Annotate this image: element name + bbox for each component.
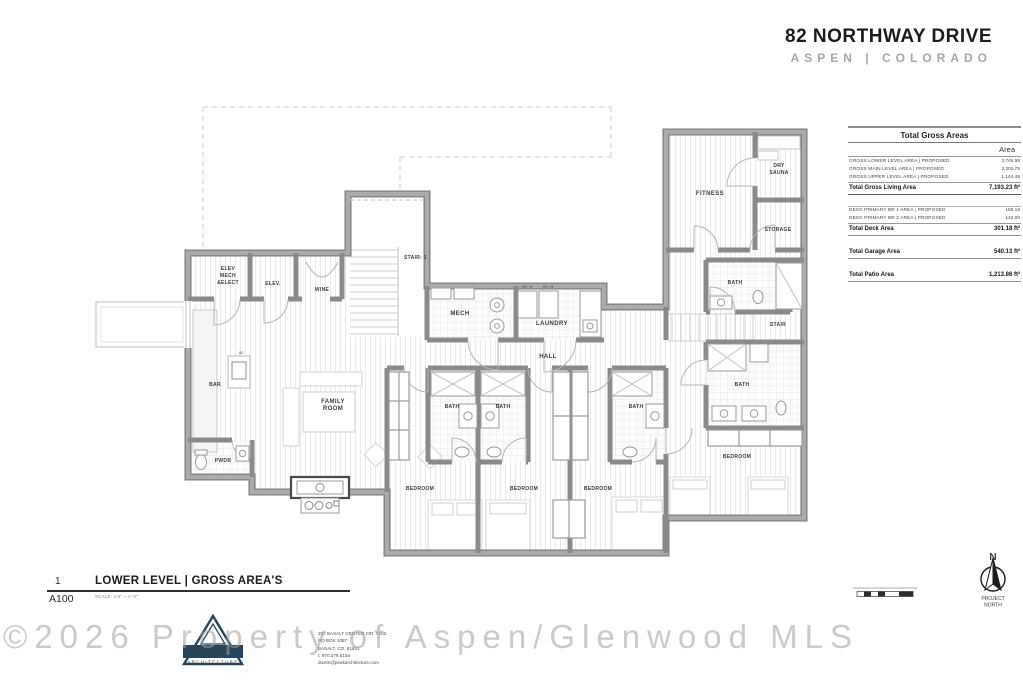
room-label-pwdr: PWDR (215, 458, 232, 464)
page-subtitle: ASPEN | COLORADO (785, 51, 992, 65)
table-row: DECK PRIMARY BR 1 AREA | PROPOSED 159.18 (848, 206, 1021, 215)
window-left (184, 301, 192, 348)
room-label-hall: HALL (539, 354, 557, 360)
room-label-sauna: DRY (773, 163, 785, 169)
sheet-page: ELEV MECH &ELECT ELEV. WINE STAIR: 1 MEC… (0, 0, 1023, 680)
svg-text:NORTH: NORTH (984, 603, 1002, 609)
room-label-family: FAMILY (321, 399, 345, 405)
window-well (96, 302, 188, 347)
room-label-stair2: STAIR (770, 322, 786, 328)
stair-shaft-floor (350, 197, 424, 337)
room-label-bedroom2: BEDROOM (510, 486, 538, 492)
table-row: GROSS UPPER LEVEL AREA | PROPOSED 1,144.… (848, 173, 1021, 181)
room-label-elev: ELEV. (265, 281, 281, 287)
table-row: DECK PRIMARY BR 2 AREA | PROPOSED 142.00 (848, 215, 1021, 223)
room-label-mech: MECH (450, 311, 469, 317)
room-label-bath4: BATH (728, 280, 743, 286)
total-patio-row: Total Patio Area 1,213.86 ft² (848, 270, 1021, 282)
drawing-title: LOWER LEVEL | GROSS AREA'S (95, 575, 283, 587)
room-label-elev-mech: ELEV (221, 266, 236, 272)
svg-text:PEAK: PEAK (194, 647, 232, 658)
peak-architecture-logo: PEAK ARCHITECTURE (183, 616, 243, 665)
room-label-bedroom4: BEDROOM (723, 454, 751, 460)
drawing-scale: SCALE: 1/4" = 1'-0" (95, 594, 138, 599)
table-row: GROSS MAIN LEVEL AREA | PROPOSED 2,301.7… (848, 165, 1021, 173)
room-label-stair1: STAIR: 1 (404, 255, 427, 261)
sheet-number: A100 (49, 593, 74, 605)
room-label-bath2: BATH (496, 404, 511, 410)
total-living-row: Total Gross Living Area 7,193.23 ft² (848, 182, 1021, 195)
label-drw-2: DR / W (543, 285, 555, 289)
firm-address-line: t: 970.279.5154 (318, 652, 386, 659)
firm-address-line: BASALT, CO. 81621 (318, 645, 386, 652)
svg-text:&ELECT: &ELECT (217, 280, 239, 286)
room-label-bath3: BATH (629, 404, 644, 410)
room-label-laundry: LAUNDRY (536, 321, 568, 327)
page-title: 82 NORTHWAY DRIVE (785, 26, 992, 48)
svg-text:SAUNA: SAUNA (769, 170, 788, 176)
table-title: Total Gross Areas (848, 126, 1021, 143)
svg-text:ARCHITECTURE: ARCHITECTURE (187, 660, 238, 665)
room-label-wine: WINE (315, 287, 330, 293)
total-deck-row: Total Deck Area 301.18 ft² (848, 223, 1021, 236)
title-block-rule (47, 590, 350, 592)
sheet-header: 82 NORTHWAY DRIVE ASPEN | COLORADO (785, 26, 992, 65)
room-label-bedroom3: BEDROOM (584, 486, 612, 492)
graphic-scale-bar (853, 588, 918, 597)
table-column-header: Area (848, 143, 1021, 157)
firm-address-block: 207 BASALT CENTER CIR. #102 PO BOX 1087 … (318, 630, 386, 667)
room-label-bedroom1: BEDROOM (406, 486, 434, 492)
svg-text:ROOM: ROOM (323, 406, 343, 412)
fireplace (291, 477, 349, 513)
table-row: GROSS LOWER LEVEL AREA | PROPOSED 3,746.… (848, 157, 1021, 165)
room-label-bath1: BATH (445, 404, 460, 410)
total-garage-row: Total Garage Area 540.13 ft² (848, 247, 1021, 259)
room-label-bar: BAR (209, 382, 221, 388)
label-drw-1: DR / W (522, 285, 534, 289)
room-label-fitness: FITNESS (696, 191, 724, 197)
room-label-storage: STORAGE (765, 227, 792, 233)
room-label-bath5: BATH (735, 382, 750, 388)
svg-text:PROJECT: PROJECT (981, 596, 1004, 602)
label-uc: UC (239, 351, 244, 355)
north-arrow: N PROJECT NORTH (981, 552, 1005, 609)
drawing-number: 1 (55, 576, 61, 587)
firm-address-line: dustin@peakarchitecture.com (318, 659, 386, 666)
gross-areas-table: Total Gross Areas Area GROSS LOWER LEVEL… (848, 126, 1021, 282)
firm-address-line: PO BOX 1087 (318, 637, 386, 644)
svg-text:MECH: MECH (220, 273, 236, 279)
firm-address-line: 207 BASALT CENTER CIR. #102 (318, 630, 386, 637)
